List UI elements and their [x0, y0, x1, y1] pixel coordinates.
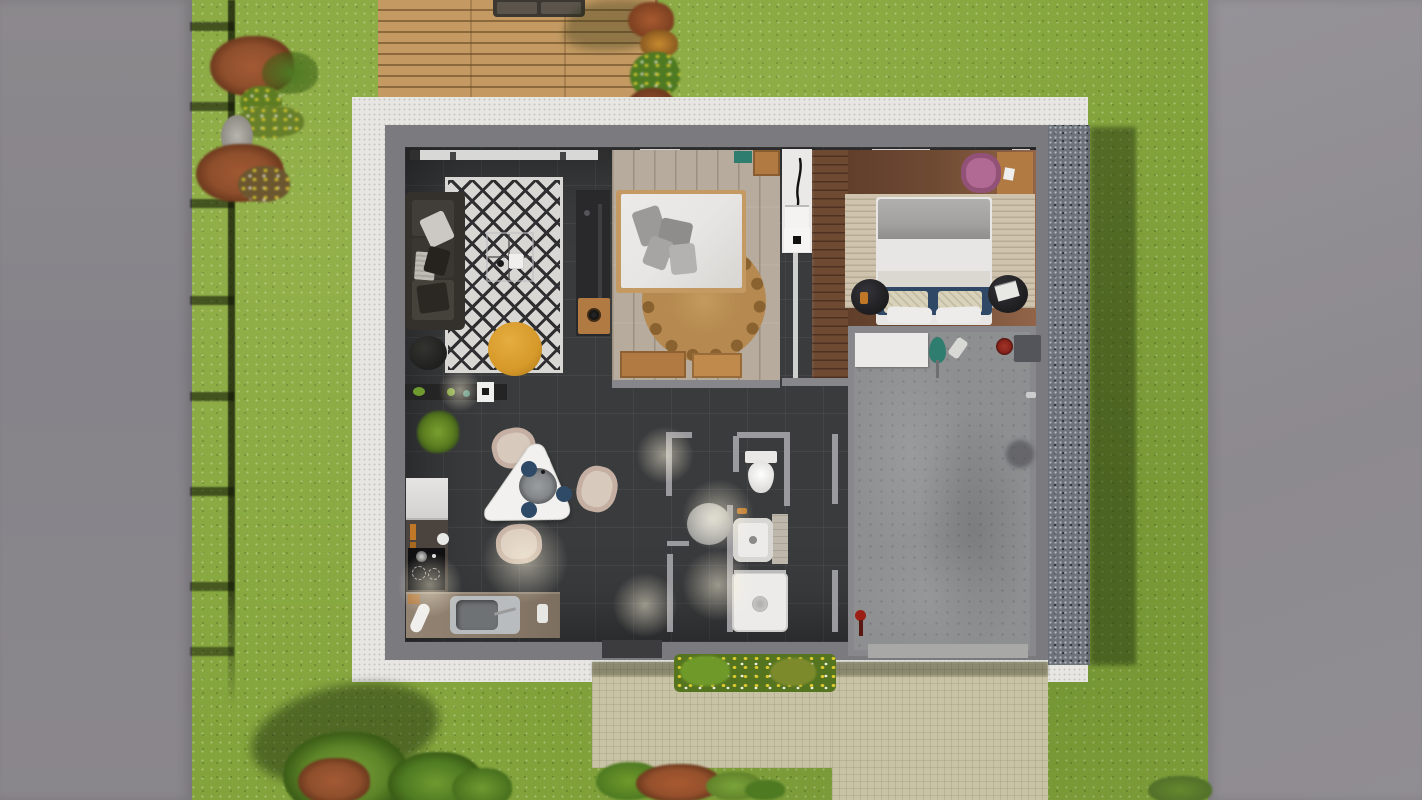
bath-wall — [667, 541, 689, 546]
white-cup — [543, 457, 550, 464]
washbasin — [733, 518, 773, 562]
wood-crate — [753, 150, 780, 176]
shrub-bottom-right — [1148, 776, 1212, 800]
shower-drain — [752, 596, 768, 612]
worktop — [406, 592, 560, 638]
sofa — [405, 192, 465, 330]
bed2-blanket-gray — [878, 199, 990, 239]
yellow-pouf — [488, 322, 542, 376]
bath-wall — [666, 436, 672, 496]
white-bowl — [437, 533, 449, 545]
wood-crate — [692, 353, 742, 378]
workbench-white — [855, 333, 928, 367]
road-left — [0, 0, 192, 800]
teal-bench — [734, 151, 752, 163]
black-pouf — [409, 336, 447, 370]
bedroom2-wall — [782, 378, 848, 386]
floor-mat-dark — [1014, 335, 1041, 362]
induction-hob — [408, 548, 445, 590]
steel-sink — [450, 596, 520, 634]
hob-burner — [428, 568, 440, 580]
fence-rung — [190, 22, 234, 31]
garage-side-wall — [832, 434, 838, 504]
window-living — [410, 150, 608, 160]
sink-basin — [456, 600, 498, 630]
splashback-tiles — [772, 514, 788, 564]
wardrobe-frame — [784, 228, 810, 252]
garage-floor — [848, 326, 1036, 656]
floorplan-scene — [0, 0, 1422, 800]
bed1-pillow — [669, 243, 698, 276]
white-flowers — [238, 166, 290, 202]
fence-rung — [190, 582, 234, 591]
bath-wall — [667, 554, 673, 632]
bedroom1-wall — [612, 380, 780, 388]
side-table-wood — [578, 298, 610, 334]
fence-rung — [190, 102, 234, 111]
shower-door — [734, 570, 786, 573]
wardrobe-panel — [782, 149, 812, 253]
desk-wood — [997, 152, 1033, 194]
fence-rung — [190, 487, 234, 496]
floor-stain — [1006, 440, 1034, 468]
desk-paper — [1003, 167, 1015, 181]
window-mullion — [560, 152, 566, 160]
shelf-plant — [447, 388, 455, 396]
nightstand-black — [988, 275, 1028, 313]
road-right — [1208, 0, 1422, 800]
tool-handle — [936, 360, 939, 378]
shrub-small — [452, 768, 512, 800]
nightstand-papers — [994, 280, 1019, 301]
navy-plate — [521, 502, 537, 518]
bedroom2-floor-nook — [812, 150, 848, 378]
window-cap — [598, 150, 608, 160]
valve-stem — [859, 620, 863, 636]
fence-rung — [190, 392, 234, 401]
partition-wall — [793, 253, 798, 381]
bed2-pillow-white — [887, 306, 933, 324]
soap-item — [737, 508, 747, 514]
wc-wall — [733, 436, 739, 472]
fence-rung — [190, 647, 234, 656]
hob-pot — [416, 551, 427, 562]
dresser-wood — [620, 351, 686, 378]
hob-burner — [412, 566, 426, 580]
window-cap — [410, 150, 420, 160]
frame-photo — [482, 388, 489, 395]
garage-door-threshold — [868, 644, 1028, 658]
coffee-table — [486, 232, 534, 282]
pink-chair — [961, 153, 1001, 193]
flower-bed-bush — [680, 656, 730, 686]
wc-wall — [784, 432, 790, 506]
navy-plate — [556, 486, 572, 502]
decor-dot — [584, 210, 590, 216]
bed2-pillow-white — [936, 306, 982, 324]
window-mullion — [450, 152, 456, 160]
navy-plate — [521, 461, 537, 477]
basin-drain — [749, 536, 757, 544]
house-shadow — [1090, 127, 1136, 665]
wc-wall — [737, 432, 790, 438]
throw-pillow-dark — [416, 282, 450, 314]
table-book — [509, 254, 523, 268]
grass-tuft — [745, 780, 785, 800]
pepper-dot — [541, 470, 545, 474]
shelf-vase — [463, 390, 470, 397]
cutting-board — [408, 594, 420, 604]
red-bucket — [996, 338, 1013, 355]
frame-photo — [793, 236, 801, 244]
fence-rung — [190, 296, 234, 305]
shower-tray — [732, 572, 788, 632]
nightstand-black — [851, 279, 889, 315]
deck-sofa-cushion — [497, 2, 537, 14]
entry-door-recess — [602, 640, 662, 658]
driveway — [832, 662, 1048, 800]
wall-shelf — [405, 384, 507, 400]
rolled-towel — [408, 602, 431, 634]
shelf-plant — [413, 387, 425, 396]
white-cup — [549, 500, 555, 506]
gravel-strip — [1048, 125, 1090, 665]
shelf-frame — [477, 382, 494, 402]
nightstand-lamp — [860, 292, 868, 304]
decor-bowl — [587, 308, 601, 322]
glass-jar — [537, 604, 548, 623]
appliance-cabinet — [406, 478, 448, 520]
table-kettle — [497, 260, 504, 267]
indoor-plant — [417, 411, 459, 453]
round-grey-mat — [687, 503, 731, 545]
flower-bed-bush — [770, 658, 816, 686]
wall-hook — [1026, 392, 1036, 398]
red-shrub — [298, 758, 370, 800]
spice-jar — [410, 524, 416, 540]
garage-side-wall — [832, 570, 838, 632]
hob-dot — [432, 554, 436, 558]
